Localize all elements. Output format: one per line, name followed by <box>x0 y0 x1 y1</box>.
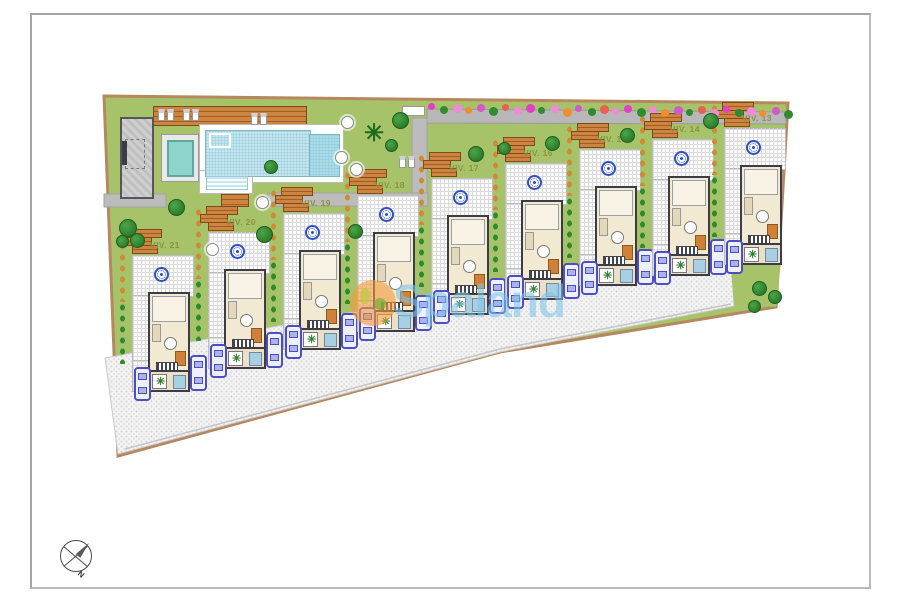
hedge-row <box>118 302 127 364</box>
house-floorplan <box>148 292 190 392</box>
hedge-row <box>565 196 574 258</box>
bedroom <box>228 273 262 299</box>
flower-icon <box>502 104 509 111</box>
sofa <box>377 264 386 282</box>
club-building <box>120 117 154 199</box>
flower-icon <box>465 107 472 114</box>
side-terrace <box>579 189 596 256</box>
watermark-logo-icon <box>350 280 396 326</box>
flower-icon <box>686 109 693 116</box>
tree-icon <box>768 290 782 304</box>
flower-icon <box>600 105 609 114</box>
villa-label: VIV. 19 <box>301 198 331 208</box>
dining-table <box>164 337 177 350</box>
villa-label: VIV. 17 <box>449 163 479 173</box>
building-interior-dashed <box>125 139 145 169</box>
hedge-row <box>491 210 500 272</box>
side-terrace <box>505 203 522 270</box>
watermark-text: Spaland <box>393 278 565 324</box>
side-terrace <box>652 179 669 246</box>
car-icon <box>654 251 671 285</box>
round-table-icon <box>256 196 269 209</box>
jacuzzi-icon <box>674 151 689 166</box>
sun-loungers <box>399 155 417 173</box>
flower-icon <box>453 104 462 113</box>
side-terrace <box>724 168 741 235</box>
pool-steps <box>206 176 248 190</box>
villa-label: VIV. 18 <box>375 180 405 190</box>
tree-icon <box>264 160 278 174</box>
building-wall-bar <box>122 141 127 165</box>
tree-icon <box>752 281 767 296</box>
shrub-icon: ✳ <box>232 354 241 365</box>
bedroom <box>152 296 186 322</box>
flower-icon <box>747 107 756 116</box>
sofa <box>303 282 312 300</box>
sofa <box>152 324 161 342</box>
car-icon <box>210 344 227 378</box>
tree-icon <box>385 139 398 152</box>
bedroom <box>672 180 706 206</box>
shrub-icon: ✳ <box>307 335 316 346</box>
side-terrace <box>208 272 225 339</box>
dining-table <box>240 314 253 327</box>
bedroom <box>451 219 485 245</box>
dining-table <box>315 295 328 308</box>
palm-tree-icon: ✳ <box>364 122 384 146</box>
bedroom <box>377 236 411 262</box>
villa-label: VIV. 14 <box>670 124 700 134</box>
villa-label: VIV. 13 <box>742 113 772 123</box>
jacuzzi-icon <box>230 244 245 259</box>
jacuzzi-icon <box>154 267 169 282</box>
compass-icon <box>60 540 92 572</box>
sofa <box>672 208 681 226</box>
bathroom <box>324 333 337 347</box>
jacuzzi-icon <box>305 225 320 240</box>
flower-icon <box>563 108 572 117</box>
flower-icon <box>551 105 559 113</box>
tree-icon <box>130 233 145 248</box>
car-icon <box>285 325 302 359</box>
bedroom <box>303 254 337 280</box>
flower-icon <box>772 107 780 115</box>
car-icon <box>581 261 598 295</box>
bathroom <box>765 248 778 262</box>
round-table-icon <box>335 151 348 164</box>
tree-icon <box>748 300 761 313</box>
pool-steps-notch <box>209 133 231 148</box>
hedge-row <box>269 260 278 322</box>
flower-icon <box>588 108 596 116</box>
jacuzzi-icon <box>527 175 542 190</box>
kids-pool <box>167 140 194 177</box>
sofa <box>525 232 534 250</box>
tree-icon <box>116 235 129 248</box>
tree-icon <box>703 113 719 129</box>
tree-icon <box>498 142 511 155</box>
round-table-icon <box>350 163 363 176</box>
wood-deck-top <box>153 106 307 126</box>
tree-icon <box>620 128 635 143</box>
side-terrace <box>132 295 149 362</box>
car-icon <box>134 367 151 401</box>
dining-table <box>537 245 550 258</box>
hedge-row <box>638 186 647 248</box>
shrub-icon: ✳ <box>156 377 165 388</box>
sun-loungers <box>183 108 201 126</box>
dining-table <box>611 231 624 244</box>
dining-table <box>684 221 697 234</box>
dining-table <box>463 260 476 273</box>
hedge-row <box>194 279 203 341</box>
jacuzzi-icon <box>746 140 761 155</box>
jacuzzi-icon <box>453 190 468 205</box>
site-plan-page: ✳ VIV. 21 <box>0 0 899 600</box>
flower-icon <box>661 109 669 117</box>
tree-icon <box>545 136 560 151</box>
bedroom <box>744 169 778 195</box>
tree-icon <box>468 146 484 162</box>
sofa <box>599 218 608 236</box>
jacuzzi-icon <box>379 207 394 222</box>
villa-label: VIV. 21 <box>150 240 180 250</box>
dining-table <box>756 210 769 223</box>
round-table-icon <box>341 116 354 129</box>
house-floorplan <box>595 186 637 286</box>
tree-icon <box>256 226 273 243</box>
round-table-icon <box>206 243 219 256</box>
house-floorplan <box>740 165 782 265</box>
shrub-icon: ✳ <box>603 271 612 282</box>
sun-loungers <box>158 108 176 126</box>
tree-icon <box>392 112 409 129</box>
bedroom <box>599 190 633 216</box>
flower-icon <box>477 104 485 112</box>
tree-icon <box>168 199 185 216</box>
house-floorplan <box>299 250 341 350</box>
flower-icon <box>649 106 656 113</box>
car-icon <box>726 240 743 274</box>
shrub-icon: ✳ <box>748 250 757 261</box>
sofa <box>744 197 753 215</box>
side-terrace <box>283 253 300 320</box>
villa-plot: VIV. 13 ✳ <box>704 98 804 286</box>
flower-icon <box>674 106 683 115</box>
house-floorplan <box>224 269 266 369</box>
bedroom <box>525 204 559 230</box>
sun-loungers <box>251 112 269 130</box>
flower-icon <box>784 110 793 119</box>
bathroom <box>249 352 262 366</box>
shrub-icon: ✳ <box>676 261 685 272</box>
jacuzzi-icon <box>601 161 616 176</box>
villa-label: VIV. 20 <box>226 217 256 227</box>
bathroom <box>173 375 186 389</box>
tree-icon <box>348 224 363 239</box>
sofa <box>451 247 460 265</box>
sofa <box>228 301 237 319</box>
flower-icon <box>723 106 730 113</box>
hedge-row <box>710 175 719 237</box>
